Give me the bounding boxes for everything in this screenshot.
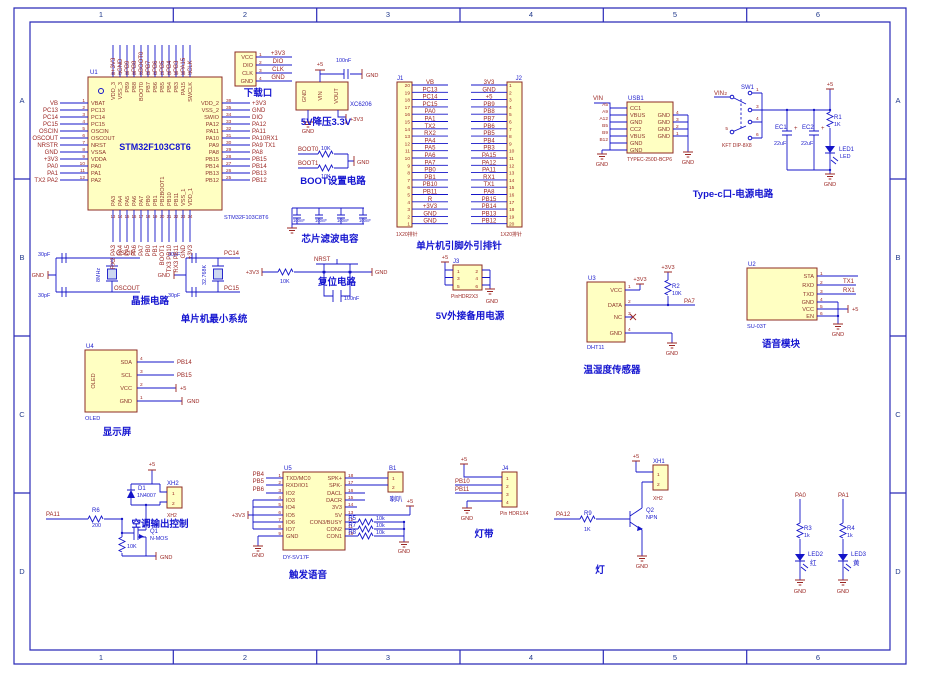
text-23: GND — [241, 79, 253, 85]
text-102: +5 — [827, 82, 833, 88]
mcu-left-num-4: 5 — [82, 126, 85, 132]
text-19: D — [895, 567, 901, 576]
mcu-left-pin-7: VSSA — [91, 150, 106, 156]
mcu-top-pin-0: VDD_3 — [111, 82, 117, 100]
ac-control-wires — [46, 470, 167, 556]
text-230: SPK- — [329, 483, 342, 489]
j2-net-9: PB3 — [483, 146, 495, 152]
text-138: U3 — [588, 276, 596, 282]
j2-num-17: 18 — [509, 207, 515, 213]
text-134: 6 — [475, 284, 478, 290]
text-279: 1 — [657, 472, 660, 478]
j2-num-6: 7 — [509, 127, 512, 133]
text-222: 8 — [278, 524, 281, 530]
mcu-top-net-4: BOOT0 — [139, 51, 145, 72]
mcu-left-pin-11: PA2 — [91, 178, 101, 184]
mcu-bot-num-1: 14 — [118, 214, 123, 219]
text-13: B — [19, 253, 24, 262]
mcu-bot-net-2: PA5 — [125, 244, 131, 256]
text-268: 4 — [506, 500, 509, 506]
mcu-top-num-2: 46 — [125, 71, 130, 76]
text-44: 10K — [321, 146, 331, 152]
text-128: J3 — [453, 259, 460, 265]
text-85: VIN — [714, 91, 724, 97]
text-170: +5 — [852, 307, 858, 313]
mcu-bot-num-7: 20 — [160, 214, 165, 219]
text-252: 10k — [376, 530, 385, 536]
text-293: 黄 — [853, 558, 860, 567]
text-61: A5 — [602, 102, 608, 108]
text-140: DATA — [608, 303, 622, 309]
text-83: GND — [596, 162, 608, 168]
j2-num-10: 11 — [509, 156, 514, 162]
j2-num-12: 13 — [509, 171, 515, 177]
mcu-left-pin-8: VDDA — [91, 157, 107, 163]
j1-net-6: TX2 — [424, 124, 436, 130]
text-131: 5 — [457, 284, 460, 290]
mcu-left-net-2: PC14 — [43, 115, 59, 121]
mcu-right-net-6: PA9 TX1 — [252, 143, 276, 149]
mcu-bot-num-0: 13 — [111, 214, 116, 219]
mcu-left-pin-4: OSCIN — [91, 129, 109, 135]
mcu-top-num-1: 47 — [118, 71, 123, 76]
text-122: 10K — [280, 279, 290, 285]
crystal-32768 — [214, 269, 223, 279]
mcu-top-pin-2: PB9 — [125, 82, 131, 93]
mcu-right-pin-1: VSS_2 — [202, 108, 219, 114]
text-211: IO5 — [286, 513, 295, 519]
j2-num-0: 1 — [509, 83, 512, 89]
text-280: 2 — [657, 482, 660, 488]
text-139: VCC — [610, 288, 622, 294]
mcu-bot-num-8: 21 — [167, 214, 172, 219]
mcu-right-num-5: 31 — [226, 133, 232, 139]
j1-net-0: VB — [426, 80, 434, 86]
text-208: IO2 — [286, 491, 295, 497]
text-129: 1 — [457, 269, 460, 275]
text-79: 3 — [676, 117, 679, 123]
text-174: U4 — [86, 344, 94, 350]
text-124: 复位电路 — [317, 276, 357, 288]
j2-net-19: PB12 — [482, 219, 497, 225]
text-220: 6 — [278, 510, 281, 516]
schematic-canvas: 123456123456ABCDABCDVCCDIOCLKGND1234+3V3… — [0, 0, 938, 673]
text-76: GND — [658, 127, 670, 133]
text-142: GND — [610, 331, 622, 337]
mcu-left-num-5: 6 — [82, 133, 85, 139]
crystal-8mhz — [108, 269, 117, 279]
text-181: 3 — [140, 369, 143, 375]
text-111: 30pF — [38, 293, 51, 299]
mcu-top-pin-5: PB7 — [146, 82, 152, 93]
mcu-bot-pin-6: PB1 — [153, 195, 159, 206]
text-33: GND — [302, 90, 308, 102]
text-77: GND — [658, 134, 670, 140]
mcu-right-num-0: 36 — [226, 98, 232, 104]
text-105: GND — [824, 182, 836, 188]
mcu-right-pin-0: VDD_2 — [201, 101, 219, 107]
text-277: +5 — [633, 454, 639, 460]
text-201: 1 — [172, 491, 175, 497]
mcu-top-num-4: 44 — [139, 71, 144, 76]
text-233: 3V3 — [332, 505, 342, 511]
j2-net-4: PB8 — [483, 109, 495, 115]
text-223: 9 — [278, 531, 281, 537]
text-263: PB10 — [455, 479, 470, 485]
j2-num-16: 17 — [509, 200, 515, 206]
j2-net-1: GND — [482, 87, 496, 93]
text-133: 4 — [475, 276, 478, 282]
mcu-right-pin-9: PB14 — [205, 164, 219, 170]
text-29: DIO — [273, 59, 284, 65]
mcu-bot-num-3: 16 — [132, 214, 137, 219]
text-27: 4 — [259, 76, 262, 82]
text-30: CLK — [272, 67, 284, 73]
text-93: KFT DIP-8X8 — [722, 143, 752, 149]
mcu-bot-net-10: GND — [181, 244, 187, 258]
mcu-top-num-6: 42 — [153, 71, 158, 76]
text-267: 3 — [506, 492, 509, 498]
text-4: 5 — [673, 10, 677, 19]
text-55: J2 — [516, 76, 523, 82]
text-31: GND — [271, 75, 285, 81]
text-254: GND — [398, 549, 410, 555]
text-92: 6 — [756, 132, 759, 138]
text-41: GND — [302, 129, 314, 135]
mcu-right-net-11: PB12 — [252, 178, 267, 184]
text-40: +3V3 — [350, 117, 363, 123]
mcu-right-num-11: 25 — [226, 175, 232, 181]
text-169: RX1 — [843, 288, 855, 294]
j2-net-17: PB14 — [482, 204, 497, 210]
j2-net-5: PB7 — [483, 117, 495, 123]
text-34: VIN — [318, 91, 324, 100]
j2-net-3: PB9 — [483, 102, 495, 108]
text-184: PB14 — [177, 360, 192, 366]
text-192: 200 — [92, 523, 101, 529]
mcu-right-pin-2: SWIO — [204, 115, 220, 121]
text-281: XH2 — [653, 496, 663, 502]
text-177: SCL — [121, 373, 132, 379]
j1-num-7: 13 — [405, 134, 411, 140]
mcu-bot-num-5: 18 — [146, 214, 151, 219]
text-98: + — [821, 126, 825, 132]
text-123: NRST — [314, 257, 331, 263]
mcu-top-pin-11: SWCLK — [188, 82, 194, 102]
text-59: VIN — [593, 96, 603, 102]
text-206: TXD/MC0 — [286, 476, 311, 482]
text-115: PC14 — [224, 251, 240, 257]
j1-num-4: 16 — [405, 112, 411, 118]
text-251: R8 — [348, 530, 356, 536]
text-91: 5 — [725, 126, 728, 132]
j2-net-10: PA15 — [482, 153, 497, 159]
mcu-ref: U1 — [90, 70, 98, 76]
text-18: C — [895, 410, 901, 419]
text-56: 1X20排针 — [396, 231, 418, 238]
text-198: D1 — [138, 486, 146, 492]
j1-net-10: PA6 — [425, 153, 437, 159]
mcu-bot-net-8: TX3 PB10 — [167, 244, 173, 272]
j2-num-19: 20 — [509, 222, 515, 228]
text-32: 下载口 — [244, 87, 273, 99]
text-153: DHT11 — [587, 345, 604, 351]
mcu-right-net-4: PA11 — [252, 129, 266, 135]
mcu-left-pin-10: PA1 — [91, 171, 101, 177]
text-283: 灯 — [595, 564, 605, 576]
text-94: EC1 — [775, 125, 787, 131]
j2-num-18: 19 — [509, 214, 515, 220]
text-190: PA11 — [46, 512, 60, 518]
mcu-bot-num-6: 19 — [153, 214, 158, 219]
text-39: GND — [366, 73, 378, 79]
text-57: 1X20排针 — [500, 231, 522, 238]
text-216: 2 — [278, 480, 281, 486]
text-126: GND — [375, 270, 387, 276]
mcu-left-num-7: 8 — [82, 147, 85, 153]
text-193: 10K — [127, 544, 137, 550]
mcu-top-net-1: GND — [118, 58, 124, 72]
text-21: DIO — [243, 63, 254, 69]
text-161: EN — [806, 314, 814, 320]
text-9: 4 — [529, 653, 533, 662]
text-226: PB6 — [253, 487, 265, 493]
text-258: 喇叭 — [390, 494, 404, 503]
mcu-right-num-3: 33 — [226, 119, 232, 125]
text-212: IO6 — [286, 520, 295, 526]
text-282: GND — [636, 564, 648, 570]
j2-num-8: 9 — [509, 141, 512, 147]
text-157: RXD — [802, 283, 814, 289]
mcu-left-num-2: 3 — [82, 112, 85, 118]
text-113: 晶振电路 — [131, 295, 170, 307]
text-235: CON3/BUSY — [310, 520, 343, 526]
text-166: 5 — [820, 304, 823, 310]
j1-net-3: PC15 — [422, 102, 438, 108]
mcu-bot-net-9: RX3 PB11 — [174, 244, 180, 272]
text-232: DACR — [326, 498, 342, 504]
mcu-right-net-10: PB13 — [252, 171, 267, 177]
text-249: R7 — [348, 523, 356, 529]
text-148: +3V3 — [661, 265, 674, 271]
mcu-right-num-2: 34 — [226, 112, 232, 118]
text-107: 30pF — [38, 252, 51, 258]
text-271: 灯带 — [474, 528, 494, 540]
text-172: SU-03T — [747, 324, 767, 330]
text-272: PA12 — [556, 512, 571, 518]
text-255: B1 — [389, 466, 397, 472]
text-106: Type-c口-电源电路 — [693, 188, 774, 200]
text-12: A — [19, 96, 24, 105]
j1-net-14: PB10 — [423, 182, 438, 188]
mcu-left-num-0: 1 — [82, 98, 85, 104]
text-1: 2 — [243, 10, 247, 19]
text-132: 2 — [475, 269, 478, 275]
mcu-right-pin-3: PA12 — [206, 122, 219, 128]
text-202: 2 — [172, 501, 175, 507]
text-45: BOOT1 — [298, 161, 319, 167]
mcu-right-net-9: PB14 — [252, 164, 267, 170]
mcu-left-net-4: OSCIN — [39, 129, 58, 135]
text-240: 16 — [348, 488, 354, 494]
text-109: GND — [32, 273, 44, 279]
mcu-right-num-6: 30 — [226, 140, 232, 146]
j2-num-11: 12 — [509, 163, 515, 169]
j2-num-14: 15 — [509, 185, 515, 191]
text-136: GND — [486, 299, 498, 305]
j1-num-11: 9 — [407, 163, 410, 169]
text-78: 4 — [676, 110, 679, 116]
text-58: 单片机引脚外引排针 — [416, 240, 502, 252]
text-167: 6 — [820, 311, 823, 317]
j2-net-13: RX1 — [483, 175, 495, 181]
text-0: 1 — [99, 10, 103, 19]
text-231: DACL — [327, 491, 342, 497]
mcu-top-num-8: 40 — [167, 71, 172, 76]
text-278: XH1 — [653, 459, 665, 465]
mcu-top-num-5: 43 — [146, 71, 151, 76]
text-189: 显示屏 — [103, 427, 132, 438]
text-8: 3 — [386, 653, 390, 662]
j2-net-12: PA11 — [482, 168, 496, 174]
j1-num-8: 12 — [405, 141, 411, 147]
j2-num-2: 3 — [509, 98, 512, 104]
j1-num-13: 7 — [407, 178, 410, 184]
mcu-left-num-1: 2 — [82, 105, 85, 111]
mcu-left-pin-6: NRST — [91, 143, 107, 149]
text-49: 100nF — [293, 218, 305, 223]
text-236: CON2 — [326, 527, 342, 533]
mcu-right-net-7: PA8 — [252, 150, 264, 156]
text-38: 100nF — [336, 58, 352, 64]
mcu-bot-net-7: BOOT1 — [160, 244, 166, 265]
j1-num-1: 19 — [405, 90, 411, 96]
text-158: TXD — [803, 292, 814, 298]
j1-net-12: PB0 — [424, 168, 436, 174]
j2-num-9: 10 — [509, 149, 515, 155]
text-26: 3 — [259, 68, 262, 74]
text-54: J1 — [397, 76, 404, 82]
text-63: A12 — [599, 116, 608, 122]
text-180: 4 — [140, 356, 143, 362]
text-84: GND — [682, 160, 694, 166]
text-141: NC — [614, 315, 622, 321]
mcu-left-net-8: +3V3 — [44, 157, 59, 163]
mcu-right-net-5: PA10RX1 — [252, 136, 279, 142]
text-286: R3 — [804, 526, 812, 532]
text-37: +5 — [317, 62, 323, 68]
text-16: A — [895, 96, 900, 105]
mcu-bot-pin-7: PB2BOOT1 — [160, 176, 166, 206]
j2-num-15: 16 — [509, 193, 515, 199]
text-290: LED2 — [808, 552, 824, 558]
text-151: PA7 — [684, 299, 696, 305]
j2-net-16: PB15 — [482, 197, 497, 203]
mcu-right-num-7: 29 — [226, 147, 232, 153]
j1-num-19: 1 — [407, 222, 410, 228]
text-241: 15 — [348, 495, 354, 501]
text-62: A9 — [602, 109, 608, 115]
j1-num-17: 3 — [407, 207, 410, 213]
text-11: 6 — [816, 653, 820, 662]
j1-num-2: 18 — [405, 98, 411, 104]
text-165: 4 — [820, 297, 823, 303]
mcu-right-num-10: 26 — [226, 168, 232, 174]
text-67: CC1 — [630, 106, 641, 112]
text-97: EC2 — [802, 125, 814, 131]
text-25: 2 — [259, 60, 262, 66]
text-215: 1 — [278, 473, 281, 479]
j2-num-13: 14 — [509, 178, 515, 184]
text-143: 1 — [628, 284, 631, 290]
mcu-bot-pin-10: VSS_1 — [181, 189, 187, 206]
text-120: 单片机最小系统 — [181, 313, 248, 325]
j1-net-16: R — [428, 197, 433, 203]
text-197: +5 — [149, 462, 155, 468]
text-127: +5 — [442, 255, 448, 261]
text-22: CLK — [242, 71, 253, 77]
text-96: 22uF — [774, 141, 787, 147]
mcu-right-pin-5: PA10 — [206, 136, 219, 142]
j1-num-9: 11 — [405, 149, 410, 155]
mcu-left-num-6: 7 — [82, 140, 85, 146]
text-90: 4 — [756, 116, 759, 122]
text-183: 1 — [140, 395, 143, 401]
text-28: +3V3 — [271, 51, 286, 57]
mcu-top-pin-3: PB8 — [132, 82, 138, 93]
text-160: VCC — [802, 307, 814, 313]
text-100: R1 — [834, 115, 842, 121]
text-187: GND — [187, 399, 199, 405]
mcu-bot-pin-2: PA5 — [125, 196, 131, 206]
text-253: +5 — [407, 499, 413, 505]
text-117: 32.768K — [202, 265, 208, 285]
text-179: GND — [120, 399, 132, 405]
j2-net-18: PB13 — [482, 211, 497, 217]
mcu-top-pin-1: VSS_3 — [118, 82, 124, 99]
mcu-right-pin-6: PA9 — [209, 143, 219, 149]
mcu-left-pin-1: PC13 — [91, 108, 105, 114]
text-52: 100nF — [359, 218, 371, 223]
mcu-left-net-11: TX2 PA2 — [34, 178, 58, 184]
text-6: 1 — [99, 653, 103, 662]
j1-net-13: PB1 — [424, 175, 436, 181]
text-145: 3 — [628, 311, 631, 317]
text-247: R5 — [348, 516, 356, 522]
text-213: IO7 — [286, 527, 295, 533]
j1-num-0: 20 — [405, 83, 411, 89]
text-188: OLED — [85, 416, 100, 422]
text-242: 14 — [348, 502, 354, 508]
j4-body — [502, 472, 517, 507]
text-225: PB5 — [253, 479, 265, 485]
j1-num-12: 8 — [407, 171, 410, 177]
text-53: 芯片滤波电容 — [301, 233, 359, 245]
j1-net-4: PA0 — [425, 109, 437, 115]
text-66: B12 — [599, 137, 608, 143]
text-116: GND — [158, 273, 170, 279]
text-270: Pin HDR1X4 — [500, 511, 529, 517]
j1-net-8: PA4 — [425, 138, 437, 144]
text-103: LED1 — [839, 147, 855, 153]
text-265: 1 — [506, 476, 509, 482]
mcu-bot-pin-9: PB11 — [174, 193, 180, 206]
text-163: 2 — [820, 280, 823, 286]
text-10: 5 — [673, 653, 677, 662]
text-43: BOOT0 — [298, 147, 319, 153]
mcu-right-num-4: 32 — [226, 126, 232, 132]
j1-net-11: PA7 — [425, 160, 437, 166]
